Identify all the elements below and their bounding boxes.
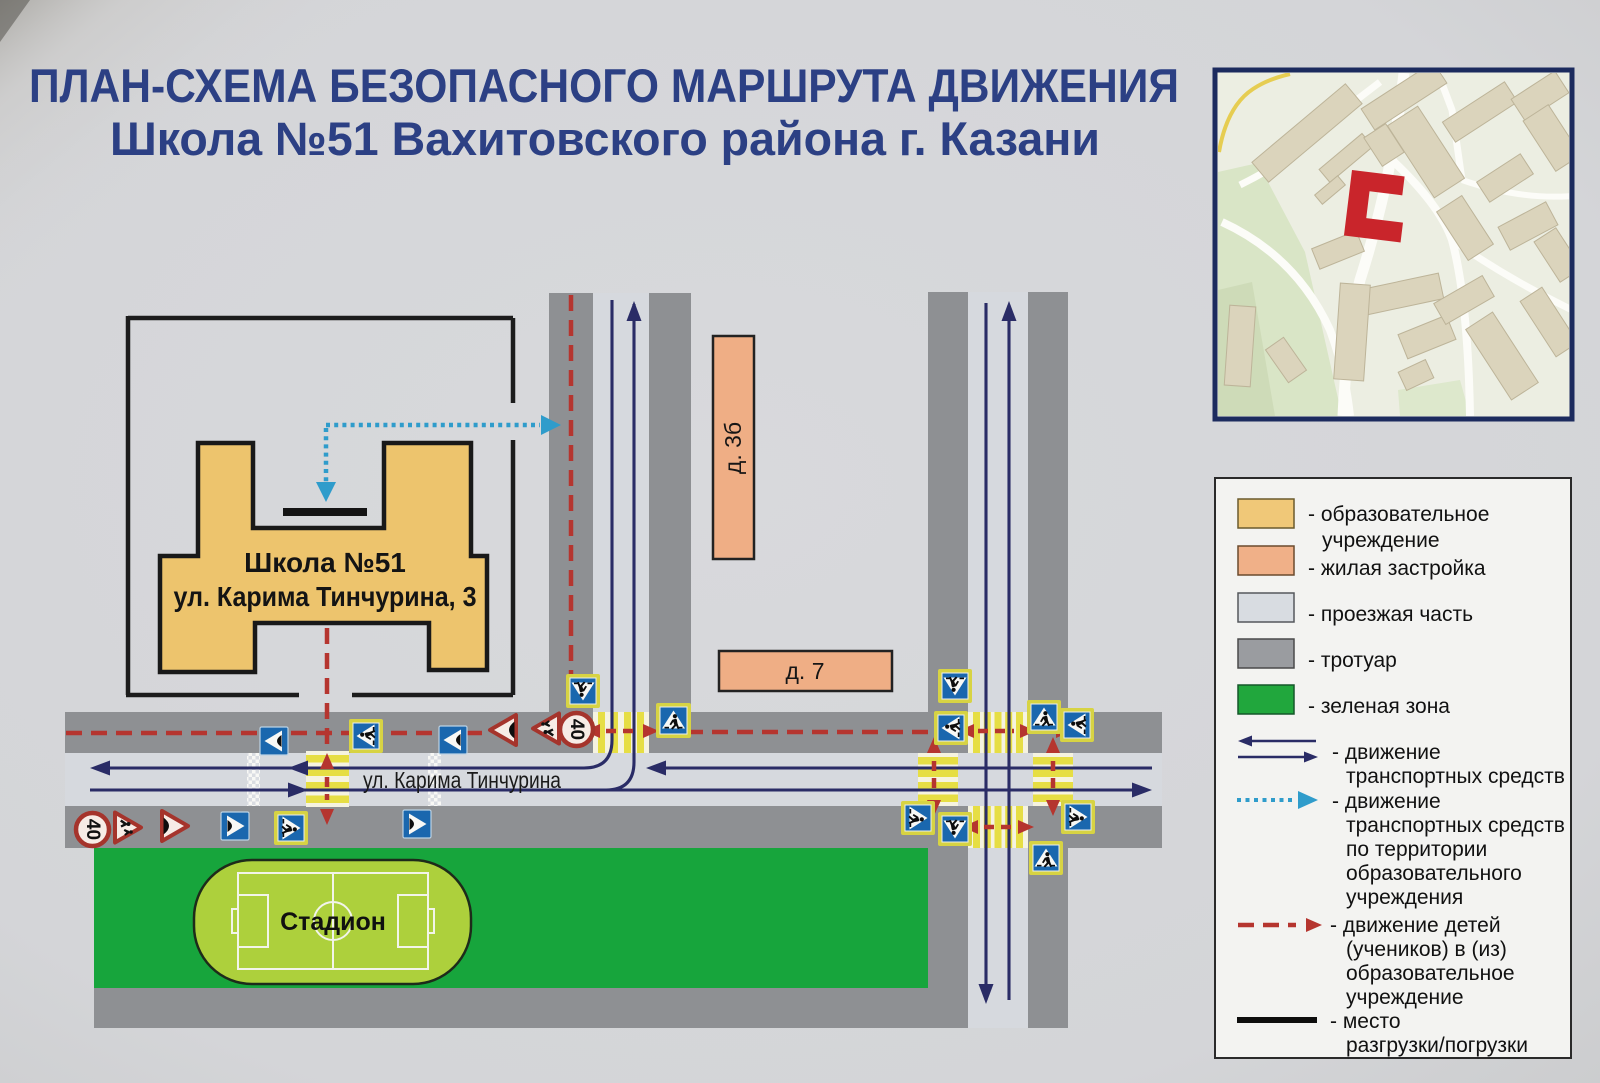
svg-text:Стадион: Стадион [280, 908, 386, 936]
svg-text:д. 7: д. 7 [786, 658, 825, 684]
svg-text:(учеников) в (из): (учеников) в (из) [1346, 938, 1507, 961]
svg-text:Школа №51: Школа №51 [244, 547, 406, 578]
svg-text:образовательное: образовательное [1346, 962, 1515, 985]
svg-text:ПЛАН-СХЕМА БЕЗОПАСНОГО МАРШРУТ: ПЛАН-СХЕМА БЕЗОПАСНОГО МАРШРУТА ДВИЖЕНИЯ [29, 59, 1179, 112]
svg-text:д. 3б: д. 3б [720, 422, 746, 474]
svg-text:40: 40 [566, 719, 587, 740]
svg-text:разгрузки/погрузки: разгрузки/погрузки [1346, 1034, 1528, 1057]
svg-text:образовательного: образовательного [1346, 862, 1522, 885]
svg-text:транспортных средств: транспортных средств [1346, 814, 1565, 837]
svg-text:ул. Карима Тинчурина: ул. Карима Тинчурина [363, 767, 561, 793]
svg-text:40: 40 [82, 819, 103, 840]
svg-text:- проезжая часть: - проезжая часть [1308, 603, 1473, 626]
svg-text:- тротуар: - тротуар [1308, 649, 1397, 672]
svg-text:- движение: - движение [1332, 741, 1441, 764]
svg-text:по территории: по территории [1346, 838, 1487, 861]
svg-text:учреждение: учреждение [1346, 986, 1464, 1009]
svg-text:Школа №51 Вахитовского района: Школа №51 Вахитовского района г. Казани [110, 112, 1100, 165]
svg-text:- место: - место [1330, 1010, 1401, 1033]
svg-text:- движение детей: - движение детей [1330, 914, 1501, 937]
svg-text:- жилая застройка: - жилая застройка [1308, 557, 1486, 580]
svg-text:ул. Карима Тинчурина, 3: ул. Карима Тинчурина, 3 [174, 581, 477, 612]
svg-text:- зеленая зона: - зеленая зона [1308, 695, 1450, 718]
svg-text:учреждения: учреждения [1346, 886, 1463, 909]
svg-text:- движение: - движение [1332, 790, 1441, 813]
svg-text:транспортных средств: транспортных средств [1346, 765, 1565, 788]
svg-text:- образовательное: - образовательное [1308, 503, 1489, 526]
svg-text:учреждение: учреждение [1322, 529, 1440, 552]
